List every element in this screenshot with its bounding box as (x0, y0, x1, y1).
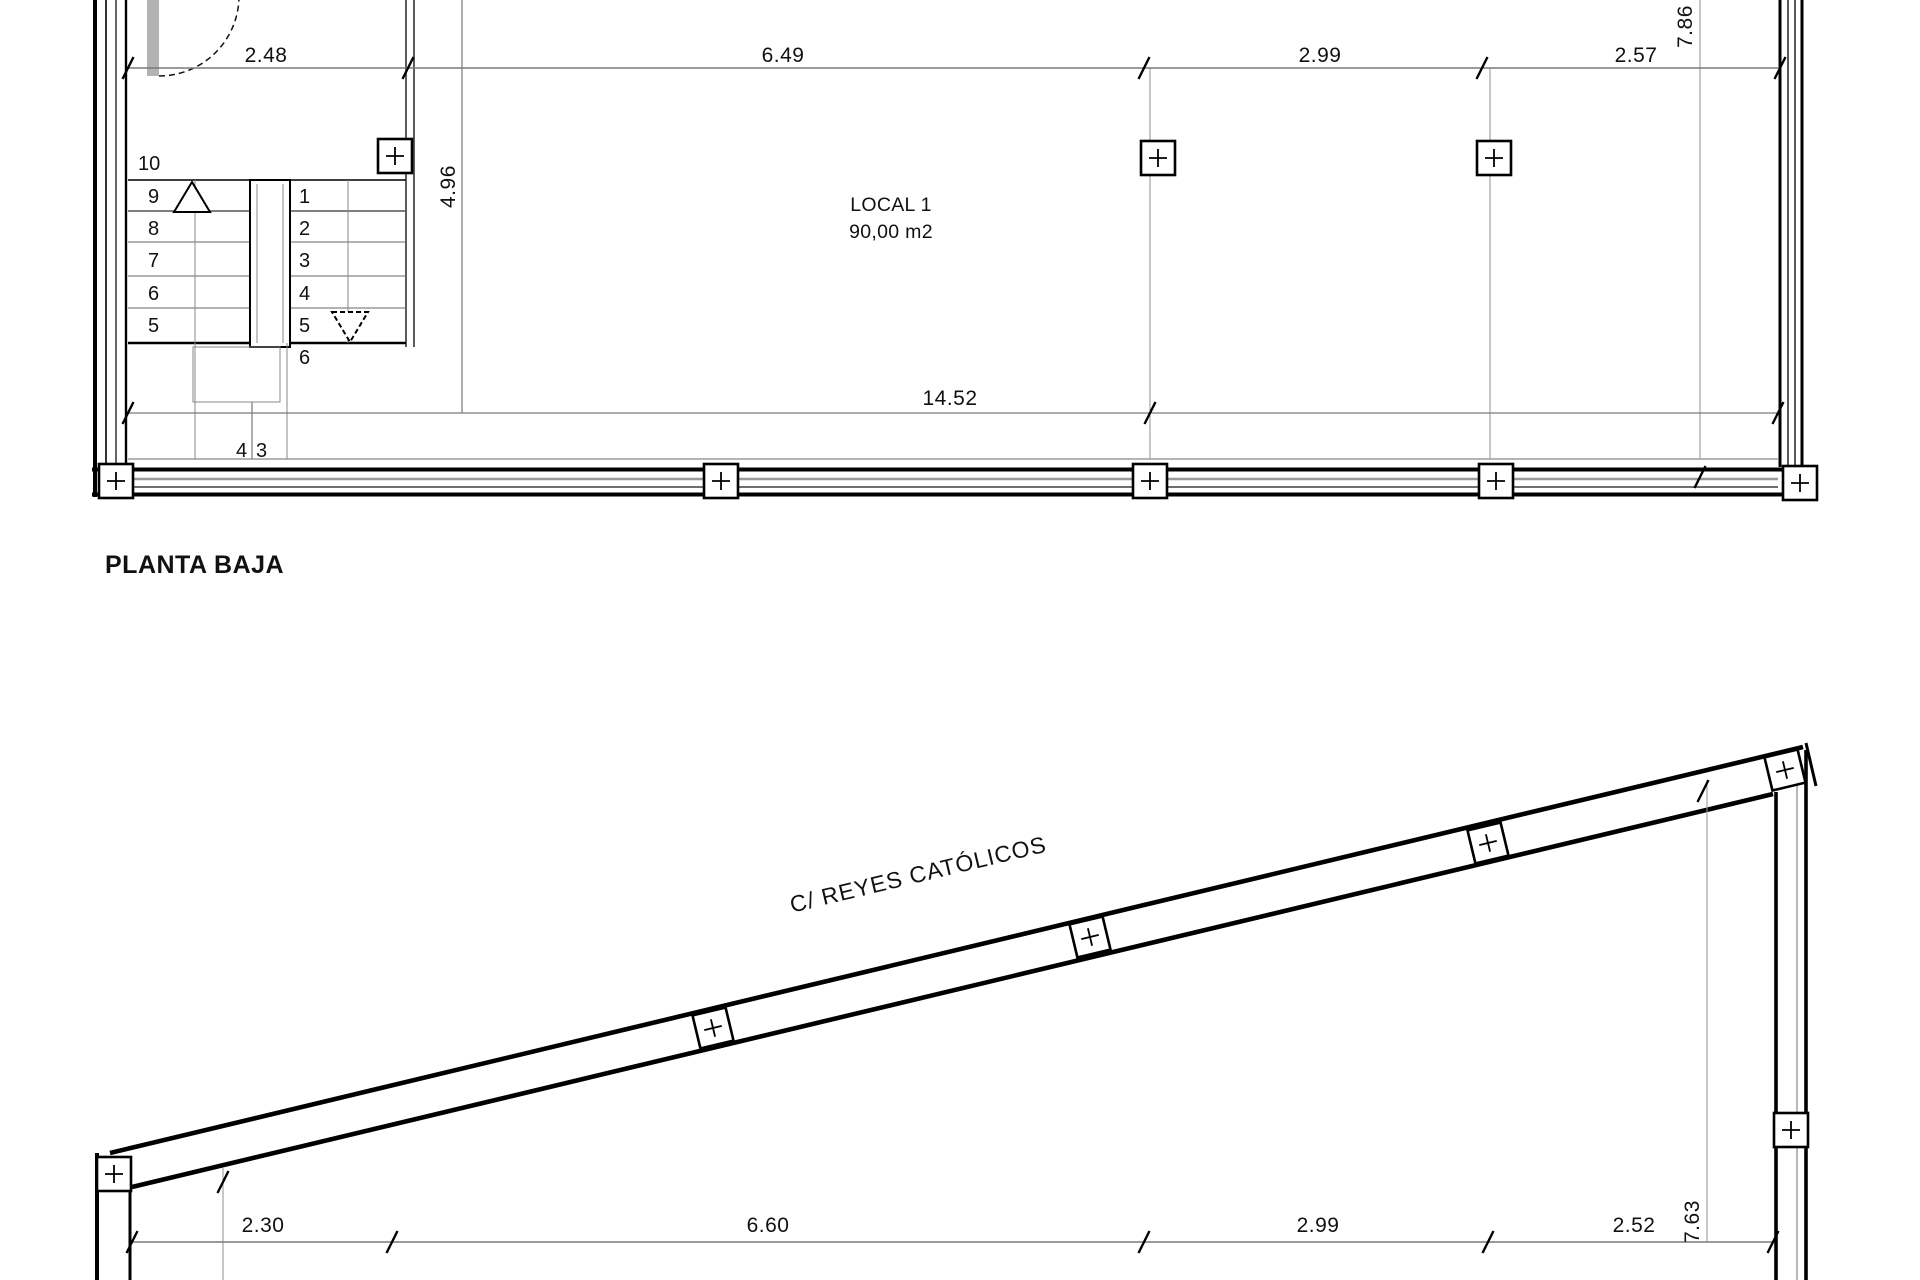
dim-label-stair-vertical: 4.96 (437, 165, 460, 208)
plus-marker (1477, 141, 1511, 175)
plus-marker (1774, 1113, 1808, 1147)
door-leaf (147, 0, 159, 76)
stair-step-label: 3 (299, 250, 310, 272)
dim-label-top-4: 2.57 (1615, 44, 1658, 67)
stair-step-label: 2 (299, 218, 310, 240)
stair-step-label: 5 (299, 315, 310, 337)
floor-plan-drawing: 2.48 6.49 2.99 2.57 7.86 4.96 14.52 LOCA… (0, 0, 1920, 1280)
bottom-storefront-wall (92, 459, 1817, 495)
plus-marker (1070, 917, 1111, 958)
dim-label-street-1: 2.30 (242, 1214, 285, 1237)
plus-marker (97, 1157, 131, 1191)
stair-label-top: 10 (138, 153, 160, 175)
plan-title: PLANTA BAJA (105, 551, 284, 579)
dim-label-street-4: 2.52 (1613, 1214, 1656, 1237)
right-wall (1780, 0, 1802, 467)
dim-label-right-vertical: 7.86 (1674, 5, 1697, 48)
plus-marker (1479, 464, 1513, 498)
dimension-lines-top-plan (128, 68, 1780, 413)
room-area-label: 90,00 m2 (849, 221, 933, 243)
stair-step-label: 7 (148, 250, 159, 272)
plan-svg: 2.48 6.49 2.99 2.57 7.86 4.96 14.52 LOCA… (0, 0, 1920, 1280)
dim-label-bottom-total: 14.52 (922, 387, 977, 410)
stair-step-label: 1 (299, 186, 310, 208)
door-swing-arc (159, 0, 239, 76)
dim-label-street-2: 6.60 (747, 1214, 790, 1237)
plus-marker (704, 464, 738, 498)
street-name-label: C/ REYES CATÓLICOS (787, 831, 1049, 918)
stair-step-label: 4 (299, 283, 310, 305)
stair-step-label: 9 (148, 186, 159, 208)
plus-marker (1468, 823, 1509, 864)
dim-label-top-1: 2.48 (245, 44, 288, 67)
plus-marker (99, 464, 133, 498)
dim-label-street-right-vertical: 7.63 (1681, 1200, 1704, 1243)
stair-up-arrow-icon (174, 182, 210, 212)
stair-step-label: 4 (236, 440, 247, 462)
stair-step-label: 3 (256, 440, 267, 462)
dim-label-top-3: 2.99 (1299, 44, 1342, 67)
plus-marker (1141, 141, 1175, 175)
room-name-label: LOCAL 1 (850, 194, 932, 216)
dim-label-street-3: 2.99 (1297, 1214, 1340, 1237)
stair-step-label: 6 (299, 347, 310, 369)
plus-marker (693, 1008, 734, 1049)
extension-lines-top-plan (406, 0, 1700, 459)
stair-step-label: 5 (148, 315, 159, 337)
diagonal-facade-wall (110, 743, 1816, 1187)
dim-label-top-2: 6.49 (762, 44, 805, 67)
stair-step-label: 8 (148, 218, 159, 240)
left-wall (95, 0, 126, 497)
plus-marker (1783, 466, 1817, 500)
street-plan-right-wall (1776, 750, 1806, 1280)
stair-step-label: 6 (148, 283, 159, 305)
plus-marker (1765, 750, 1806, 791)
plus-marker (1133, 464, 1167, 498)
plus-marker (378, 139, 412, 173)
stair-down-arrow-icon (332, 312, 368, 342)
staircase (128, 180, 406, 459)
